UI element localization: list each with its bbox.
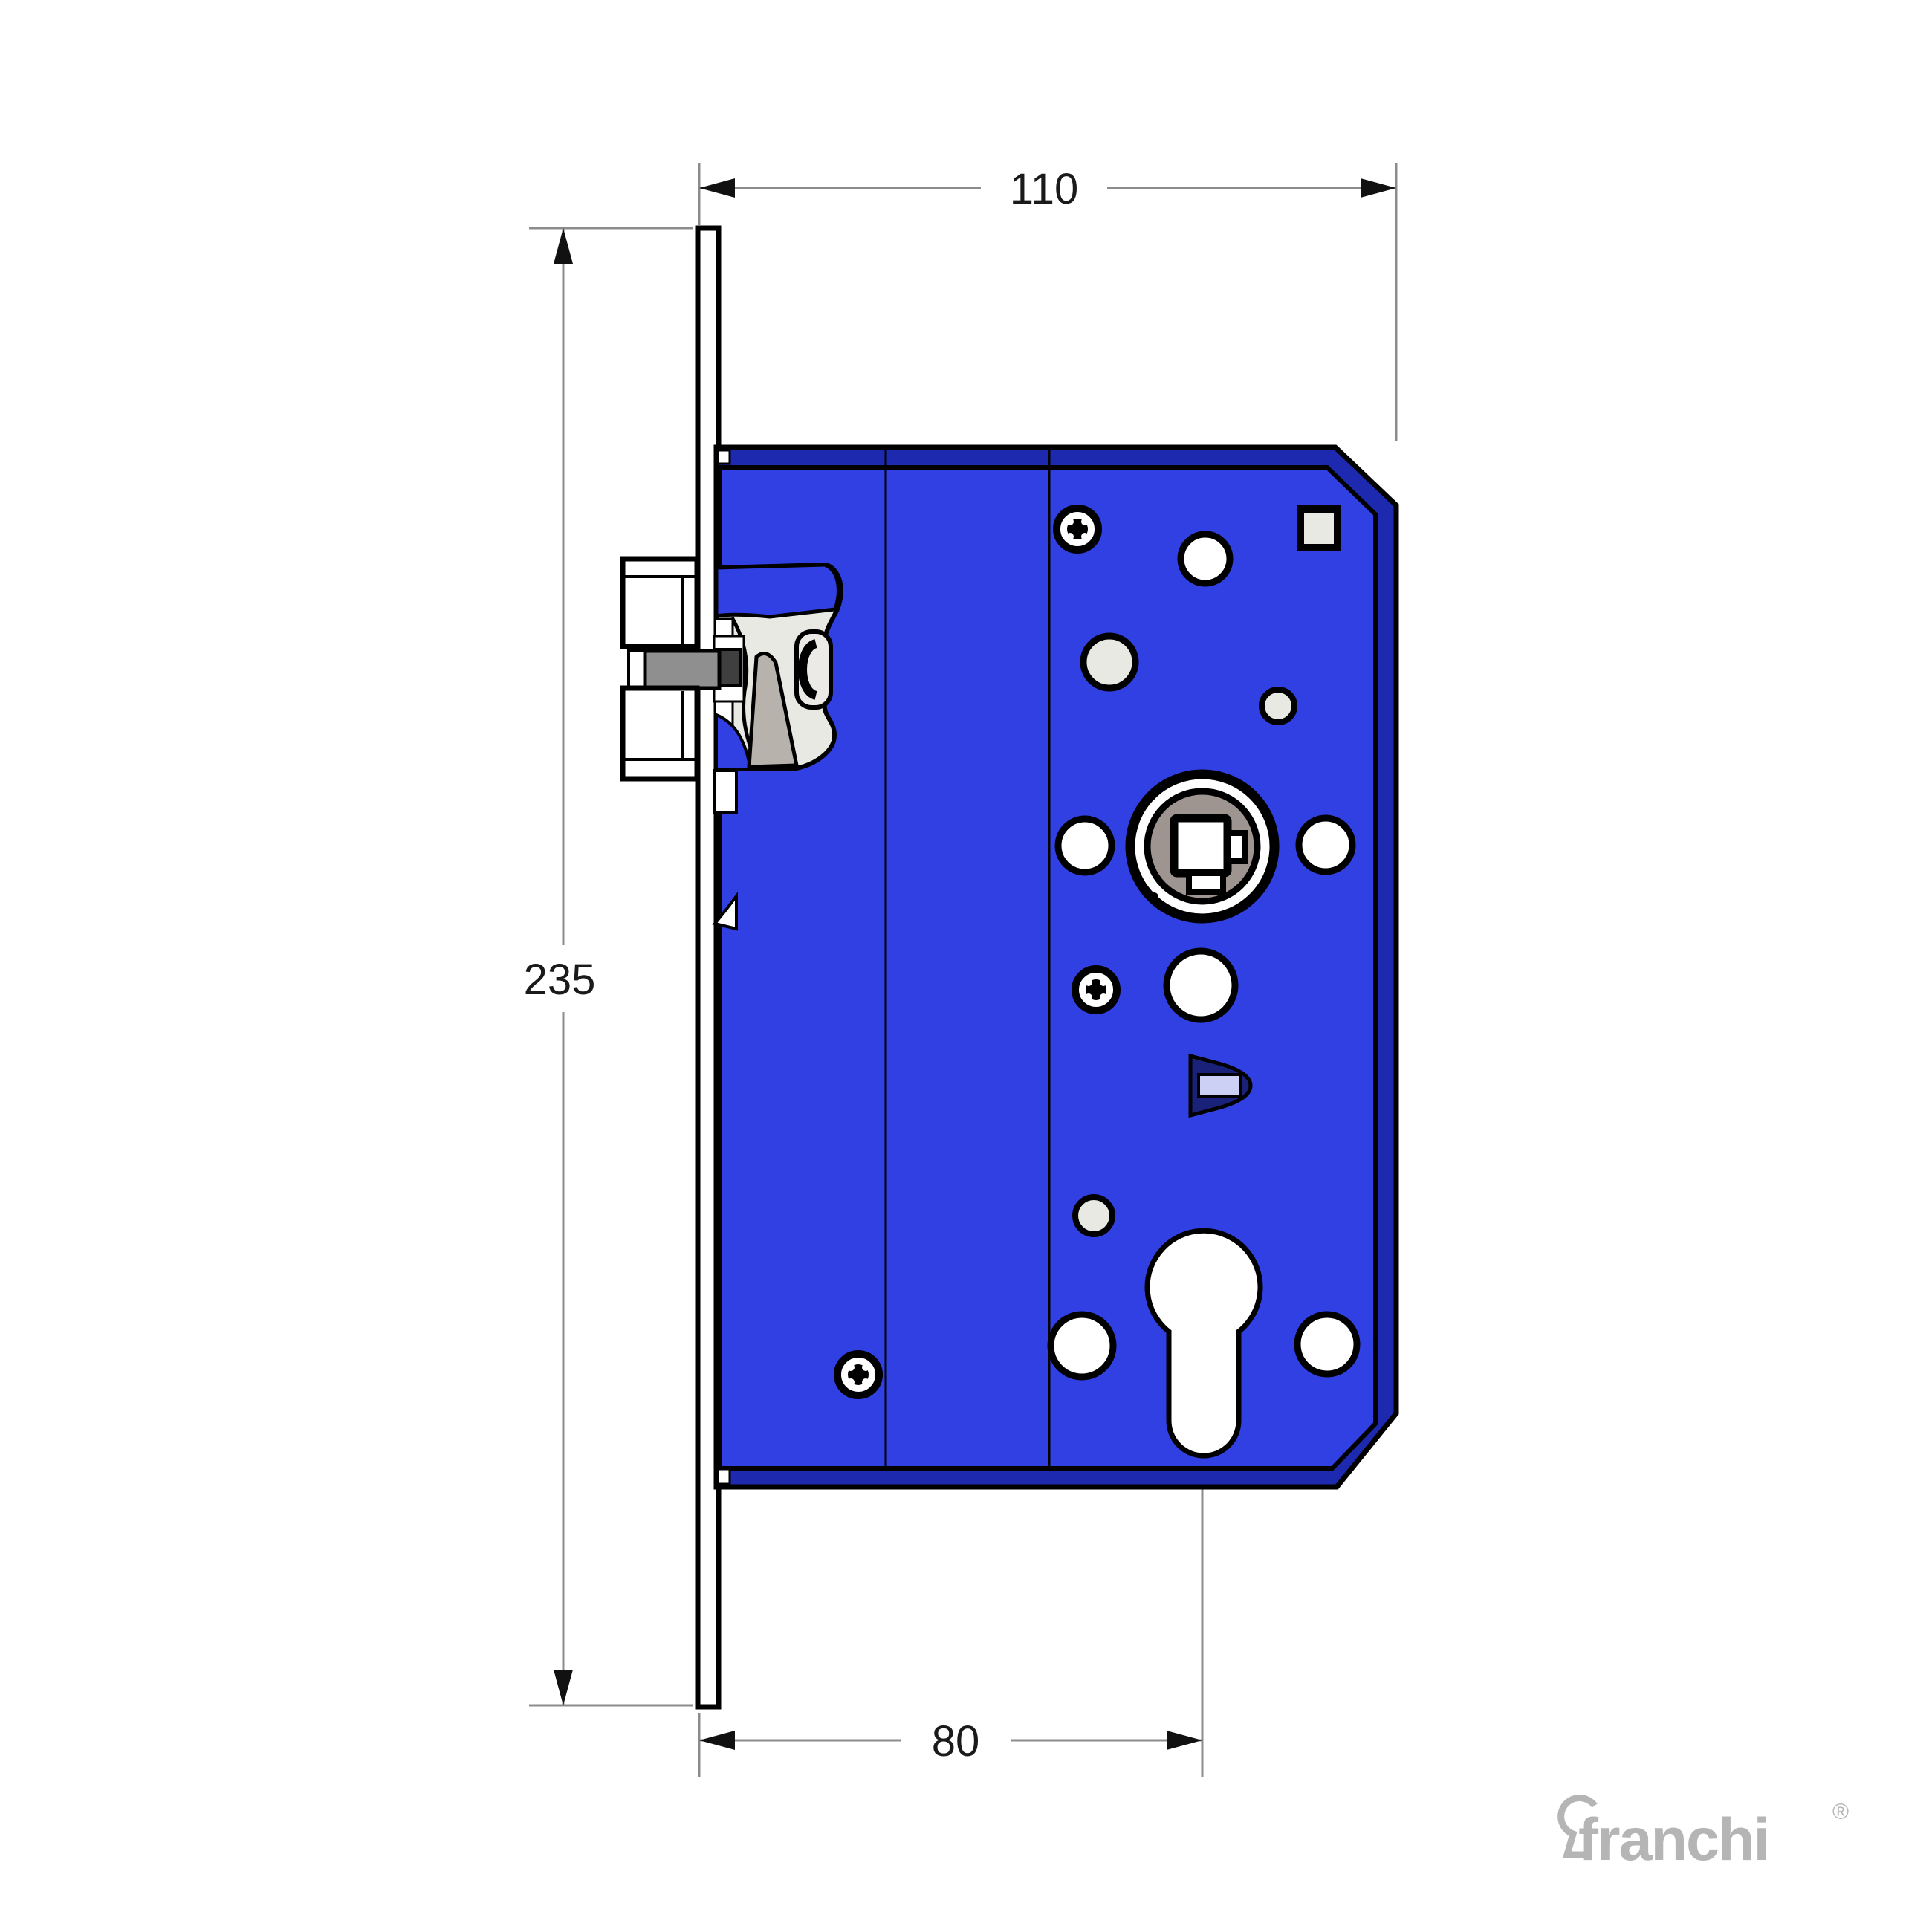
follower-side-tab	[1228, 833, 1245, 861]
screw-glint	[1100, 979, 1107, 986]
registered-trademark-icon: ®	[1832, 1800, 1849, 1824]
screw-bottom-left	[837, 1354, 879, 1395]
latch-tail-guide	[716, 565, 838, 617]
dimension-label-total-height: 235	[524, 956, 596, 1004]
dimension-total-height: 235	[524, 228, 693, 1705]
screw-glint	[847, 1378, 855, 1386]
screw-middle	[1075, 969, 1117, 1011]
lock-drawing-svg: 110 235 80	[0, 0, 1932, 1932]
hole-mid-left-small	[1075, 1197, 1112, 1234]
arrowhead-left-icon	[699, 178, 735, 198]
follower-square-spindle-hole	[1174, 818, 1228, 873]
latch-upper-block	[623, 559, 697, 646]
screw-glint	[1066, 518, 1074, 525]
brand-name: franchi	[1578, 1806, 1769, 1873]
screw-glint	[1066, 533, 1074, 540]
arrowhead-right-icon	[1361, 178, 1396, 198]
arrowhead-down-icon	[554, 1670, 573, 1705]
corner-notch-top-left	[718, 450, 730, 464]
screw-glint	[1085, 993, 1092, 1001]
hole-cylinder-left	[1051, 1315, 1113, 1377]
follower-bottom-tab	[1189, 873, 1223, 892]
arrowhead-right-icon	[1167, 1731, 1202, 1750]
screw-glint	[862, 1378, 869, 1386]
latch-lower-block	[623, 688, 697, 779]
screw-glint	[847, 1364, 855, 1371]
dimension-backset: 80	[699, 1489, 1202, 1777]
follower-nub-bottom	[1150, 892, 1158, 901]
dimension-label-case-width: 110	[1010, 165, 1078, 213]
corner-notch-bottom-left	[718, 1469, 730, 1484]
dimension-case-width: 110	[699, 163, 1396, 441]
hole-below-follower	[1167, 951, 1235, 1020]
hole-right-of-follower	[1299, 818, 1352, 872]
dimension-label-backset: 80	[932, 1717, 980, 1766]
follower-nub-top	[1147, 791, 1156, 800]
hole-cylinder-right	[1297, 1315, 1357, 1374]
hole-top-center	[1181, 534, 1230, 583]
screw-glint	[1100, 993, 1107, 1001]
screw-glint	[1081, 533, 1089, 540]
edge-step-notch	[714, 771, 736, 812]
arrowhead-left-icon	[699, 1731, 735, 1750]
square-hole-top-right	[1300, 509, 1338, 548]
screw-glint	[862, 1364, 869, 1371]
latch-mid-gray-band	[645, 651, 719, 688]
spindle-follower	[1130, 774, 1274, 918]
screw-glint	[1081, 518, 1089, 525]
hole-left-of-follower	[1058, 819, 1112, 872]
brand-logo: franchi ®	[1561, 1798, 1849, 1873]
hole-upper-left	[1083, 636, 1135, 688]
technical-drawing-canvas: 110 235 80	[0, 0, 1932, 1932]
hole-upper-right-small	[1262, 690, 1294, 722]
stop-lug-highlight	[1199, 1074, 1240, 1097]
screw-glint	[1085, 979, 1092, 986]
arrowhead-up-icon	[554, 228, 573, 264]
screw-top	[1057, 508, 1098, 550]
